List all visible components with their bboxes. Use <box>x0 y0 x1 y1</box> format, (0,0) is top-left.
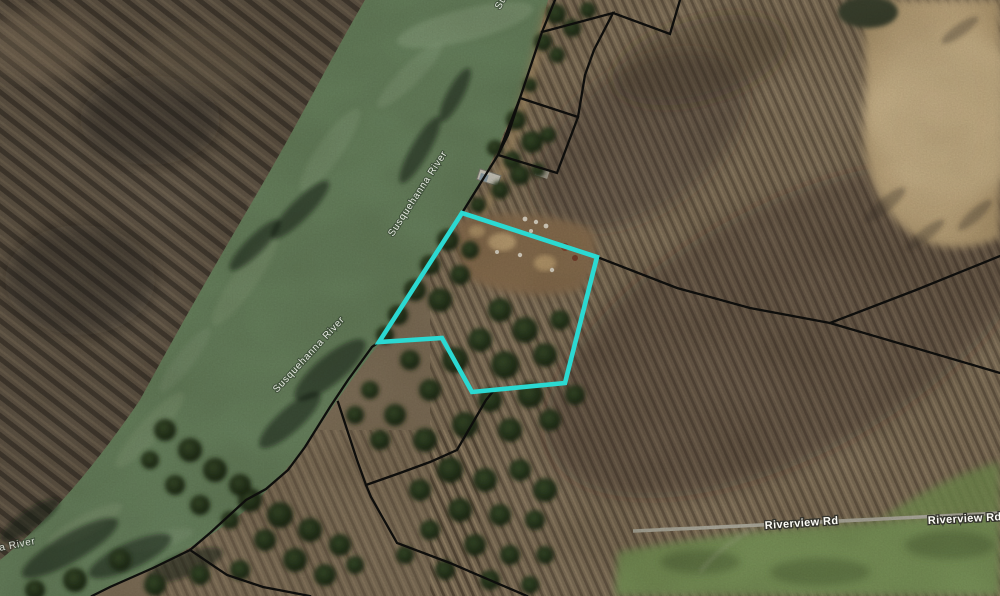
grain-overlay <box>0 0 1000 596</box>
aerial-map-viewport[interactable]: Susquehanna River Susquehanna River Susq… <box>0 0 1000 596</box>
map-canvas: Susquehanna River Susquehanna River Susq… <box>0 0 1000 596</box>
